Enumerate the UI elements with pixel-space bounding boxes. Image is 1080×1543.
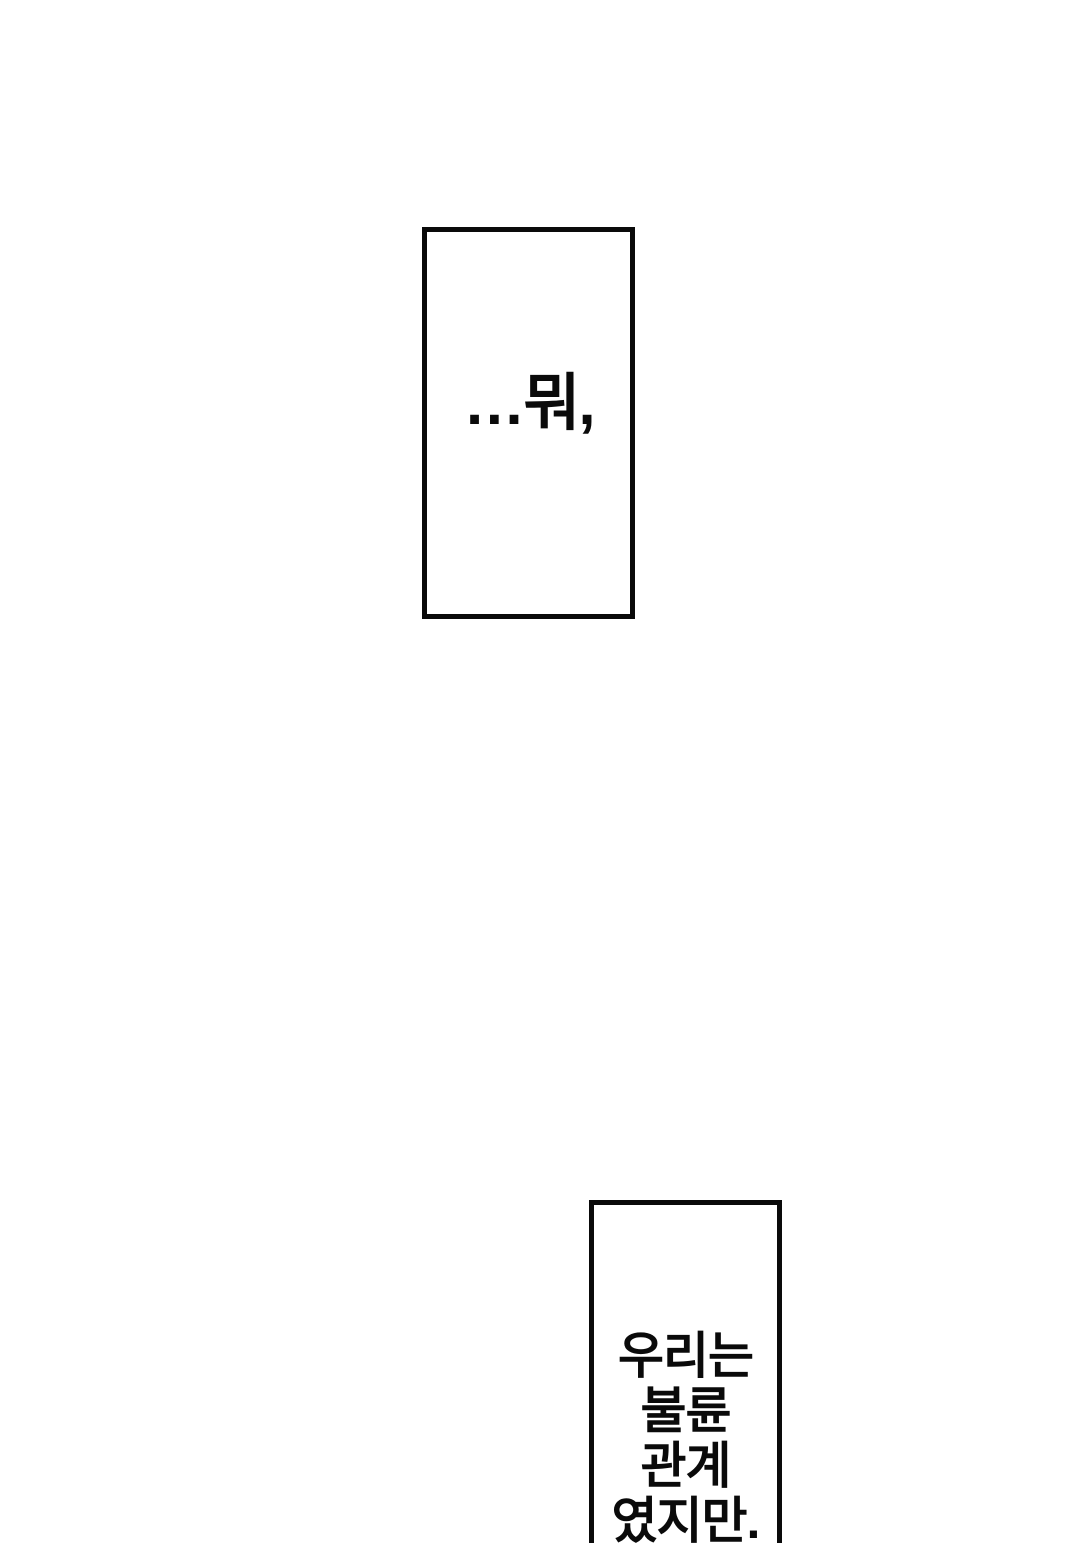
comic-page: …뭐, 우리는 불륜 관계 였지만. bbox=[0, 0, 1080, 1543]
dialogue-text-bottom: 우리는 불륜 관계 였지만. bbox=[612, 1329, 760, 1543]
dialogue-line-2: 불륜 bbox=[612, 1384, 760, 1439]
dialogue-text-top: …뭐, bbox=[463, 373, 593, 435]
caption-box-bottom: 우리는 불륜 관계 였지만. bbox=[589, 1200, 782, 1543]
caption-box-top: …뭐, bbox=[422, 227, 635, 619]
dialogue-line-1: 우리는 bbox=[612, 1329, 760, 1384]
dialogue-line-3: 관계 bbox=[612, 1439, 760, 1494]
dialogue-line-4: 였지만. bbox=[612, 1494, 760, 1543]
